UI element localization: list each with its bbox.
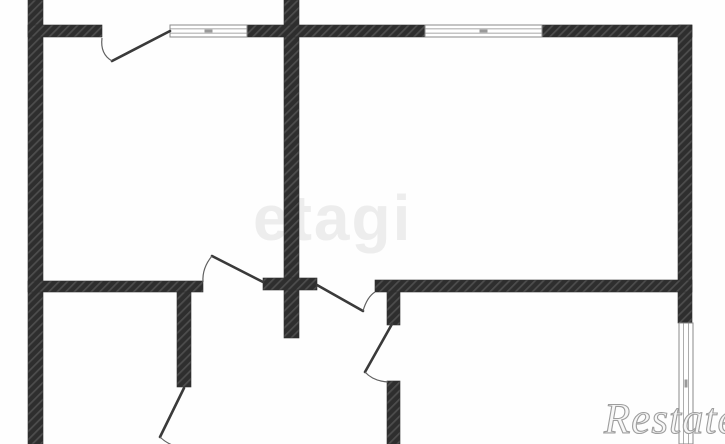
door-hall-center (317, 285, 375, 311)
door-bottom (160, 388, 184, 444)
exterior-wall-top-middle (247, 25, 425, 37)
door-bottom-leaf (160, 388, 184, 437)
partition-wall-bath-upper (387, 292, 400, 325)
door-bath-swing-arc (365, 372, 388, 382)
door-bath (365, 324, 392, 382)
exterior-wall-top-left (28, 25, 102, 37)
partition-stub-center (263, 278, 317, 290)
floor-plan-image: etagi Restate (0, 0, 725, 444)
window-top-right (425, 25, 542, 37)
exterior-wall-left (28, 0, 43, 444)
window-dimension-tick (480, 30, 488, 33)
door-balcony-top-left-leaf (112, 31, 170, 61)
door-hall-center-leaf (317, 285, 363, 311)
partition-wall-closet (177, 292, 191, 387)
door-room-left-leaf (212, 256, 263, 282)
walls-layer (28, 0, 692, 444)
window-top-left (170, 25, 247, 37)
door-balcony-top-left-swing-arc (102, 38, 112, 61)
exterior-wall-right (678, 25, 692, 323)
door-bath-leaf (365, 324, 392, 372)
exterior-wall-top-right (542, 25, 692, 37)
door-room-left-swing-arc (203, 256, 212, 282)
door-bottom-swing-arc (160, 437, 178, 444)
partition-wall-bath-lower (387, 381, 400, 444)
partition-wall-mid-right (375, 280, 692, 292)
window-dimension-tick (685, 380, 688, 388)
doors-layer (102, 31, 392, 444)
watermark-restate: Restate (604, 398, 725, 441)
floor-plan (0, 0, 725, 444)
door-hall-center-swing-arc (363, 292, 375, 311)
windows-layer (170, 25, 693, 444)
door-room-left (203, 256, 263, 282)
door-balcony-top-left (102, 31, 170, 61)
window-dimension-tick (205, 30, 213, 33)
partition-wall-mid-left (28, 281, 203, 292)
